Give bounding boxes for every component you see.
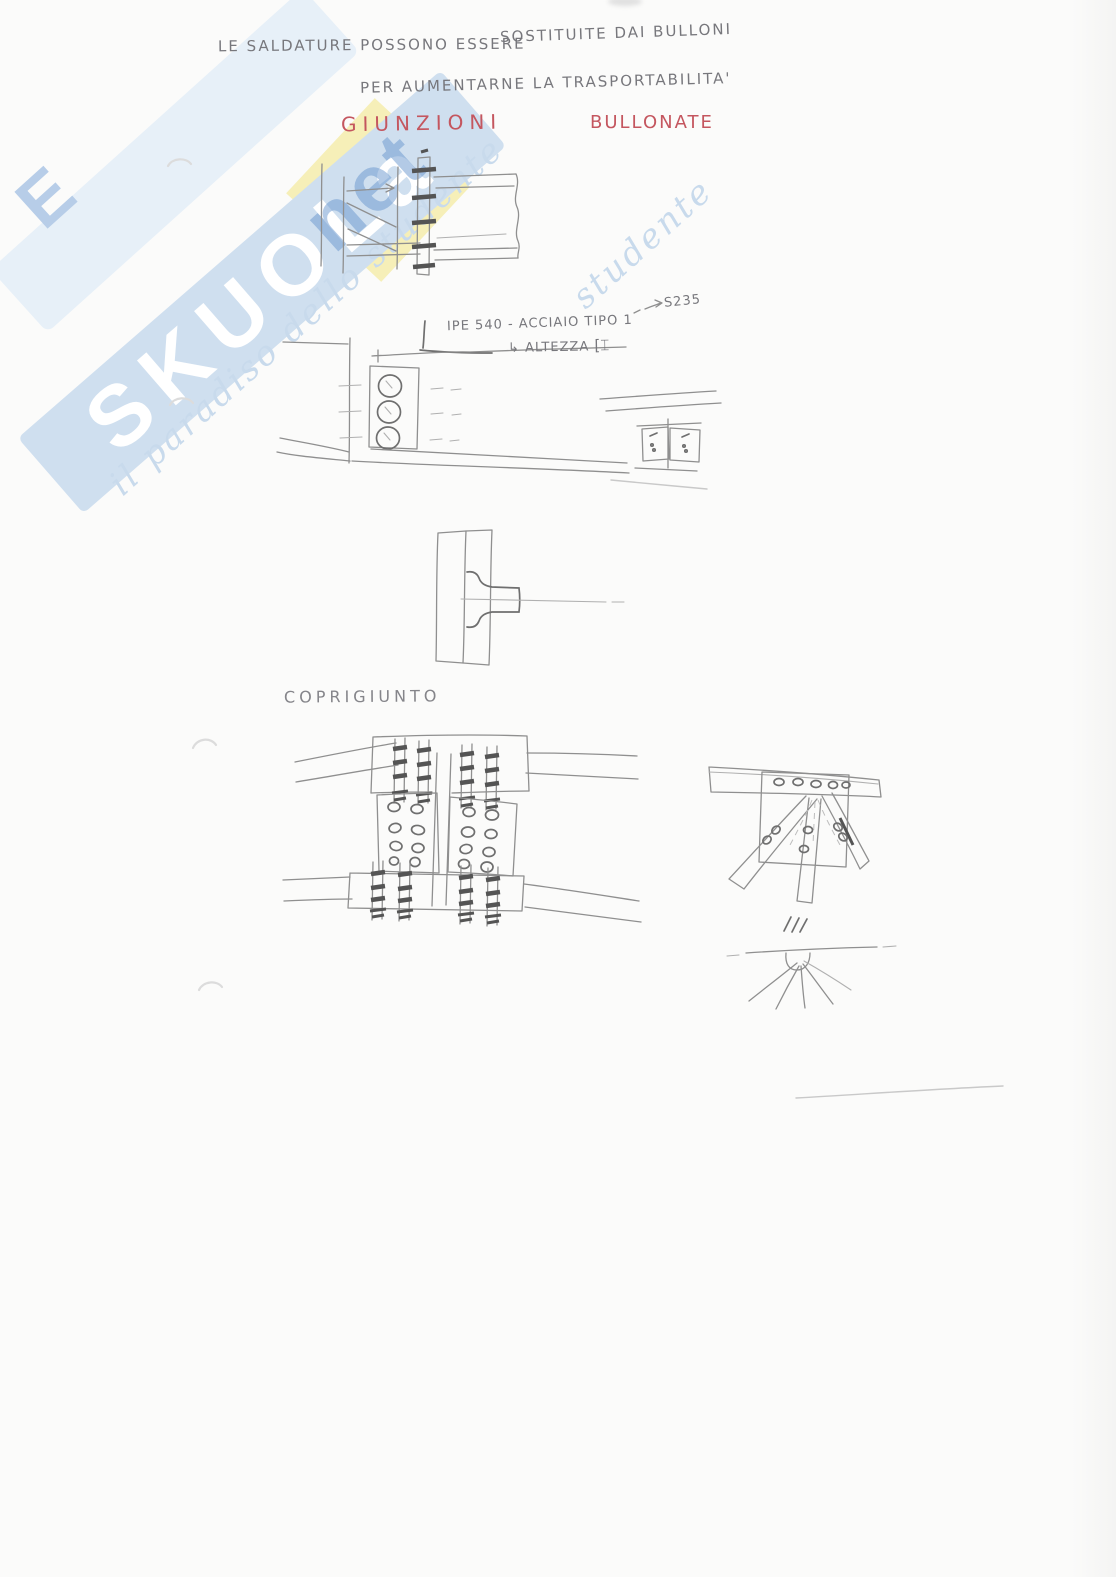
sketch-fin-plate-three-bolts: [277, 338, 629, 473]
annotation-height: ↳ ALTEZZA [⌶: [508, 336, 610, 356]
faint-baseline: [796, 1086, 1003, 1098]
sketch-beam-column-bolted-endplate: [321, 150, 519, 275]
ibeam-section-symbol: [⌶: [594, 336, 609, 354]
sketch-hinged-support: [727, 917, 896, 1009]
pencil-sketches: [0, 0, 1116, 1577]
scanned-note-page: E SKUOLa net il paradiso dello studente …: [0, 0, 1116, 1577]
note-line1-part1: LE SALDATURE POSSONO ESSERE: [218, 35, 526, 56]
label-cover-joint: COPRIGIUNTO: [284, 686, 441, 706]
page-title-word2: BULLONATE: [590, 112, 714, 133]
return-arrow-glyph: ↳: [508, 341, 520, 356]
sketch-splice-plan-detail: [600, 391, 721, 489]
sketch-tstub-section: [436, 530, 624, 665]
annotation-height-text: ALTEZZA: [525, 339, 589, 355]
sketch-cover-plate-joint: [283, 735, 641, 926]
flange-bolts-bottom: [370, 861, 501, 926]
page-title-word1: GIUNZIONI: [341, 110, 503, 137]
flange-bolts-top: [392, 738, 500, 810]
web-plate-holes: [388, 803, 499, 873]
sketch-gusset-plate: [709, 767, 881, 903]
hole-punch-marks: [168, 159, 222, 990]
